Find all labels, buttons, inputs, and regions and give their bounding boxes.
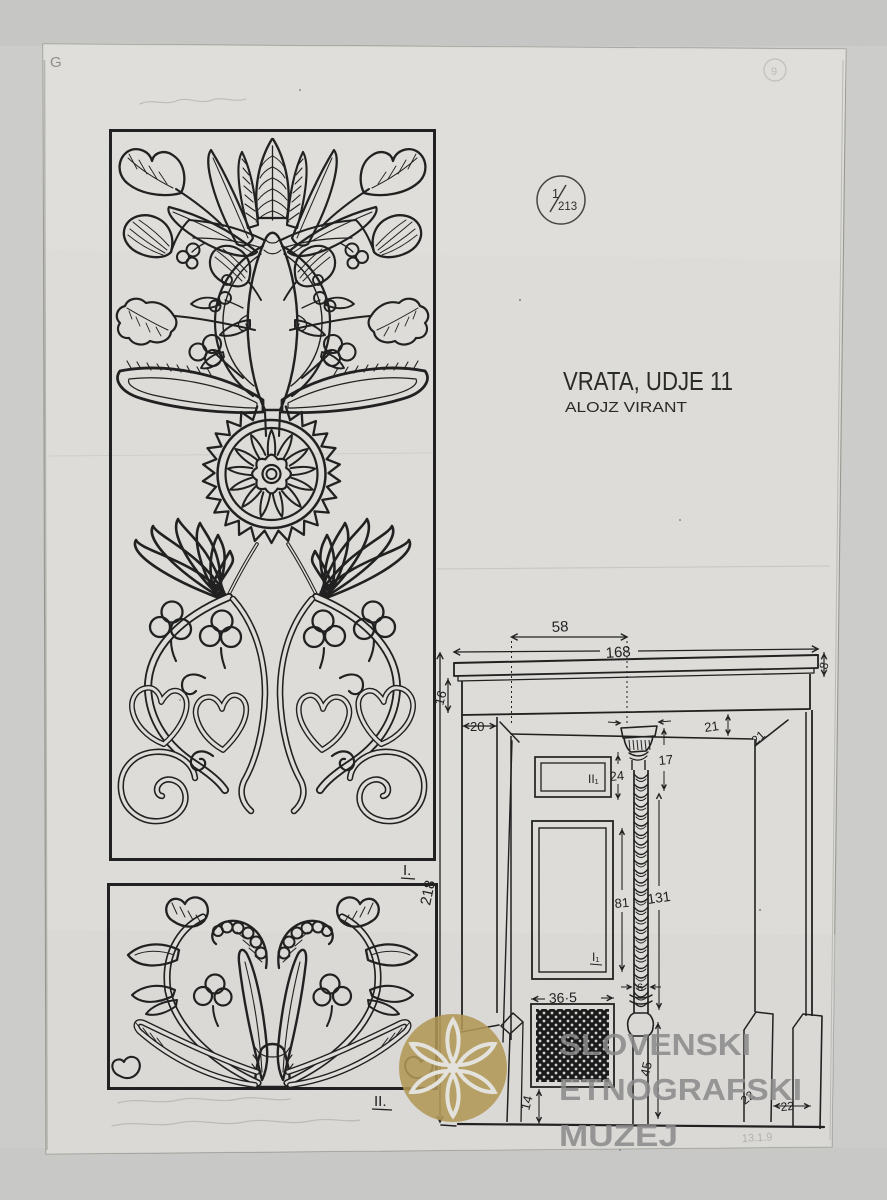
- svg-text:ETNOGRAFSKI: ETNOGRAFSKI: [559, 1072, 802, 1107]
- svg-text:9: 9: [771, 66, 777, 78]
- svg-text:ALOJZ VIRANT: ALOJZ VIRANT: [565, 399, 687, 416]
- svg-text:81: 81: [614, 895, 630, 911]
- svg-text:6: 6: [637, 982, 643, 994]
- svg-text:VRATA, UDJE 11: VRATA, UDJE 11: [563, 366, 733, 396]
- svg-text:G: G: [50, 54, 62, 71]
- svg-text:SLOVENSKI: SLOVENSKI: [559, 1027, 751, 1062]
- svg-text:20: 20: [470, 719, 484, 734]
- svg-text:213: 213: [558, 201, 577, 213]
- svg-text:36·5: 36·5: [549, 989, 578, 1006]
- svg-text:1: 1: [552, 187, 559, 201]
- svg-text:13.1.9: 13.1.9: [742, 1131, 773, 1145]
- svg-text:168: 168: [605, 643, 631, 662]
- svg-text:I.: I.: [403, 862, 411, 879]
- svg-text:17: 17: [658, 752, 674, 768]
- svg-text:131: 131: [646, 888, 672, 907]
- svg-text:58: 58: [551, 618, 569, 636]
- svg-text:I₁: I₁: [592, 950, 599, 964]
- svg-text:MUZEJ: MUZEJ: [559, 1118, 678, 1153]
- svg-text:II.: II.: [374, 1093, 387, 1110]
- svg-text:II₁: II₁: [588, 772, 599, 786]
- svg-text:21: 21: [703, 718, 719, 735]
